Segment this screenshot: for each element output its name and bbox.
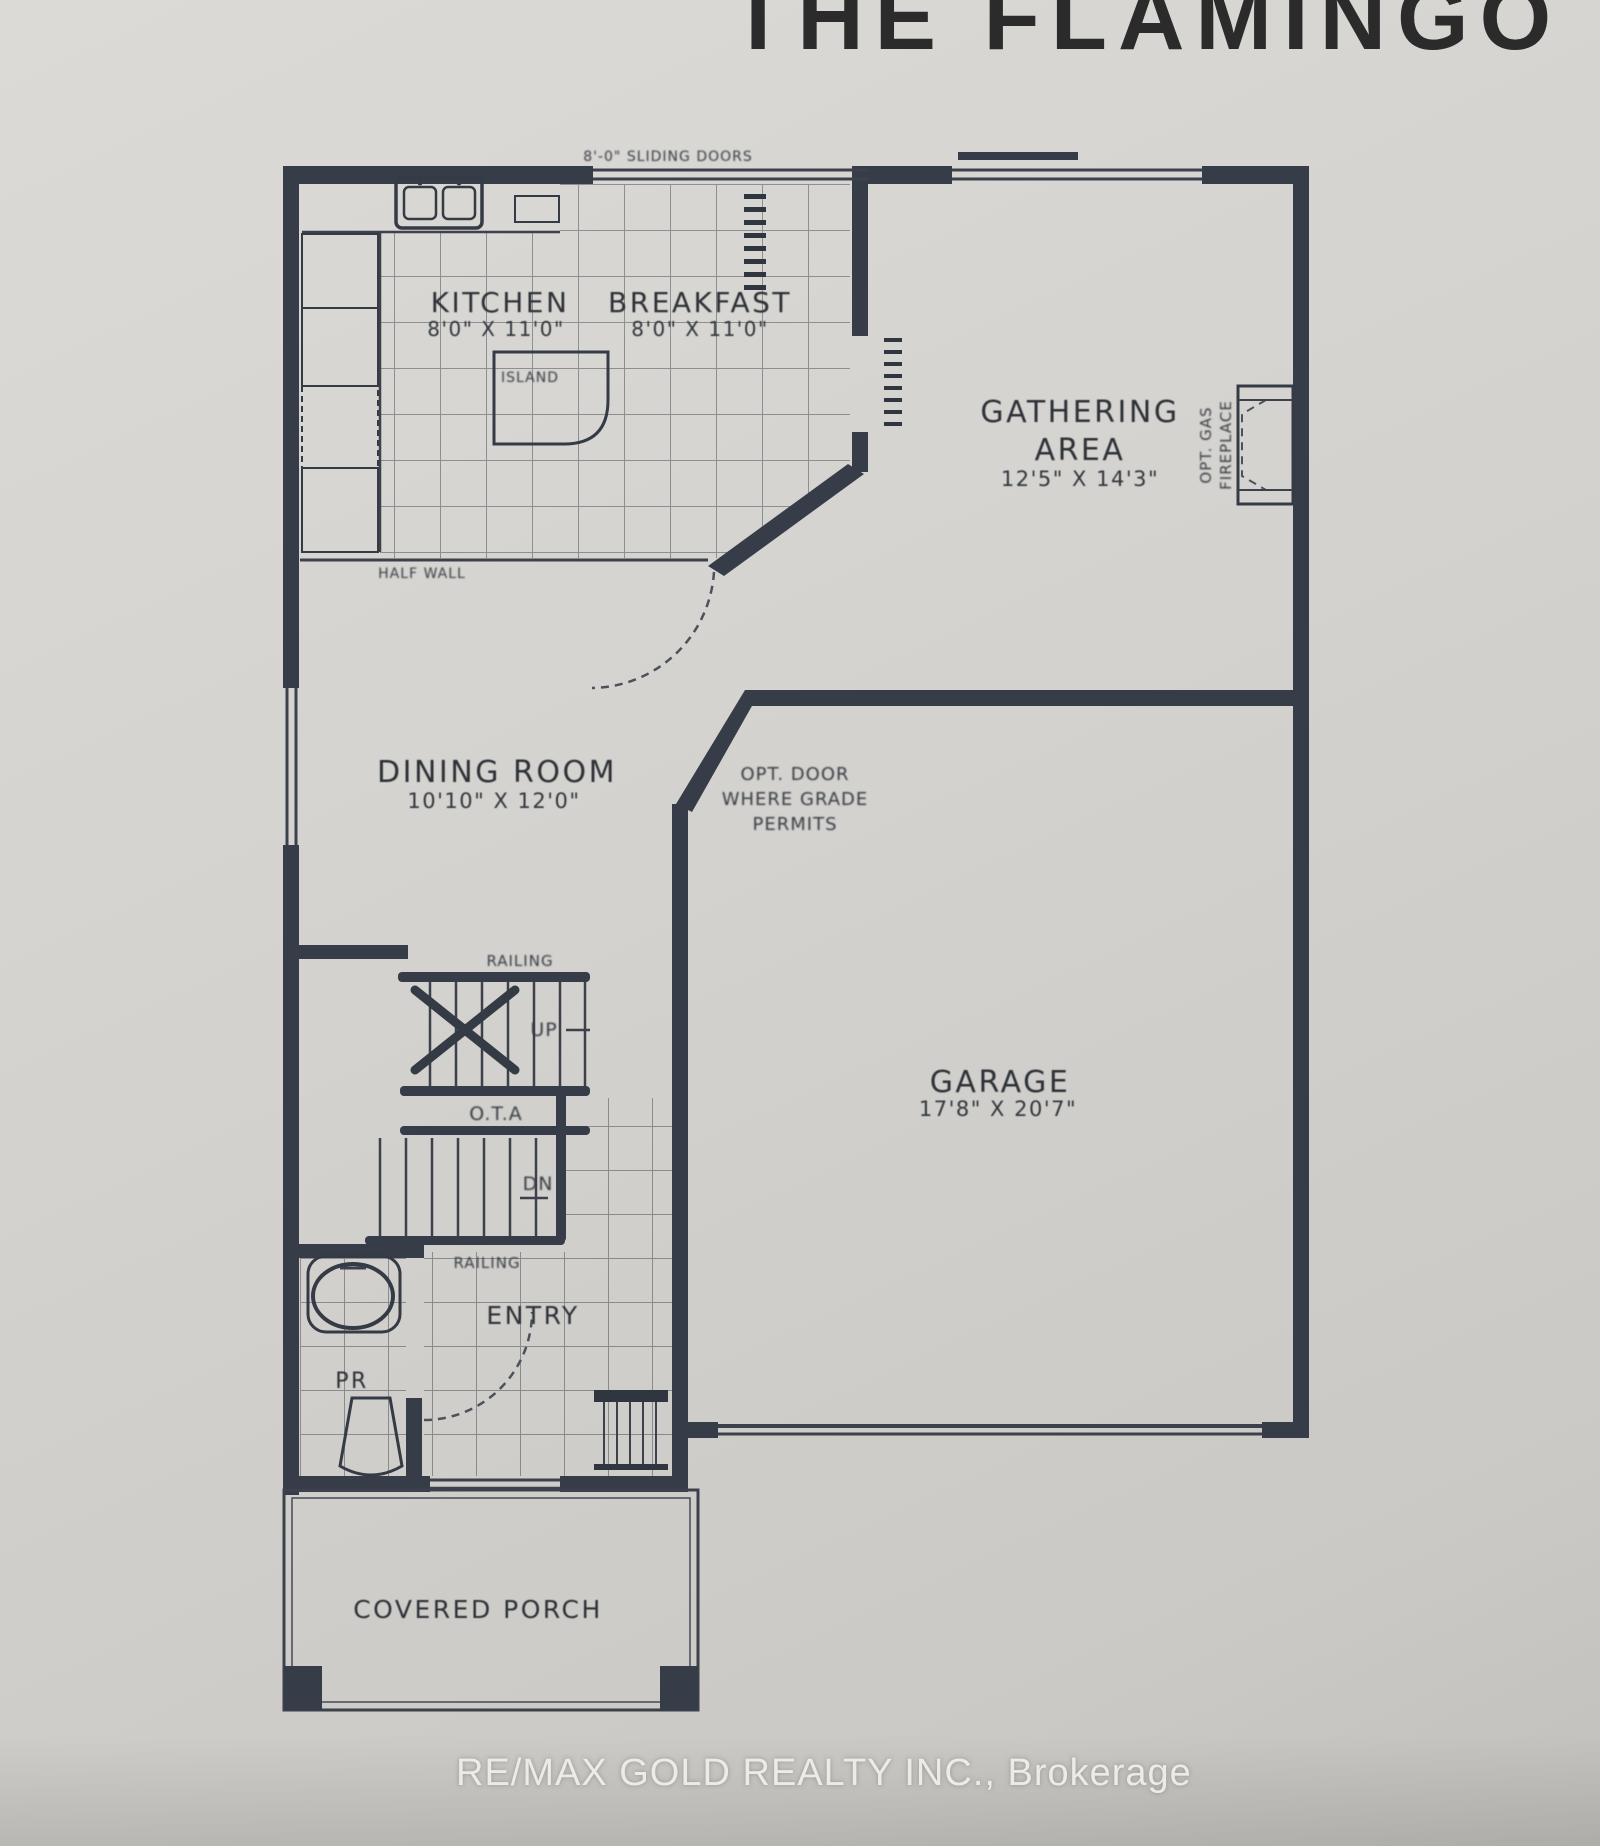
- floor-plan-drawing: ISLAND OPT. GAS FIREPLACE: [0, 0, 1600, 1846]
- open-to-above-label: O.T.A: [469, 1103, 523, 1125]
- covered-porch-label: COVERED PORCH: [353, 1595, 603, 1624]
- dishwasher-box: [515, 196, 559, 222]
- kitchen-dims: 8'0" X 11'0": [427, 317, 564, 341]
- breakfast-dims: 8'0" X 11'0": [631, 317, 768, 341]
- kitchen-breakfast-floor: [380, 184, 850, 558]
- gathering-area-dims: 12'5" X 14'3": [1001, 467, 1159, 491]
- garage-dims: 17'8" X 20'7": [919, 1097, 1077, 1121]
- sliding-door-opening: [593, 170, 868, 179]
- breakfast-label: BREAKFAST: [608, 286, 792, 319]
- opt-door-label-line3: PERMITS: [753, 814, 838, 835]
- dining-window: [287, 688, 296, 845]
- entry-floor: [424, 1098, 672, 1476]
- fireplace-label-line2: FIREPLACE: [1217, 400, 1235, 490]
- stairs-up-label: UP: [530, 1019, 557, 1041]
- garage-door-opening: [718, 1426, 1262, 1434]
- railing-lower-label: RAILING: [453, 1254, 520, 1272]
- sliding-doors-label: 8'-0" SLIDING DOORS: [583, 149, 753, 165]
- half-wall-label: HALF WALL: [378, 566, 466, 582]
- floor-plan-page: THE FLAMINGO: [0, 0, 1600, 1846]
- kitchen-sink-icon: [396, 178, 482, 228]
- opt-door-label-line1: OPT. DOOR: [740, 764, 849, 785]
- island-label: ISLAND: [501, 370, 559, 386]
- gathering-area-label-line2: AREA: [1035, 433, 1126, 468]
- kitchen-label: KITCHEN: [431, 286, 570, 319]
- dining-room-label: DINING ROOM: [377, 755, 617, 790]
- railing-upper-label: RAILING: [486, 952, 553, 970]
- gathering-window: [952, 152, 1202, 179]
- brokerage-watermark: RE/MAX GOLD REALTY INC., Brokerage: [456, 1752, 1192, 1795]
- powder-room-label: PR: [335, 1369, 369, 1394]
- opt-door-label-line2: WHERE GRADE: [722, 789, 869, 810]
- gathering-wall-hatch: [884, 338, 902, 426]
- garage-label: GARAGE: [930, 1065, 1071, 1100]
- dining-room-dims: 10'10" X 12'0": [407, 789, 580, 813]
- powder-room-floor: [300, 1258, 406, 1476]
- gathering-door-swing-arc: [592, 572, 714, 688]
- stairs-down-label: DN: [523, 1173, 554, 1195]
- gathering-area-label-line1: GATHERING: [980, 395, 1179, 430]
- entry-label: ENTRY: [486, 1301, 579, 1330]
- front-door-opening: [430, 1480, 560, 1488]
- fireplace: OPT. GAS FIREPLACE: [1197, 386, 1293, 504]
- fireplace-label-line1: OPT. GAS: [1197, 406, 1215, 483]
